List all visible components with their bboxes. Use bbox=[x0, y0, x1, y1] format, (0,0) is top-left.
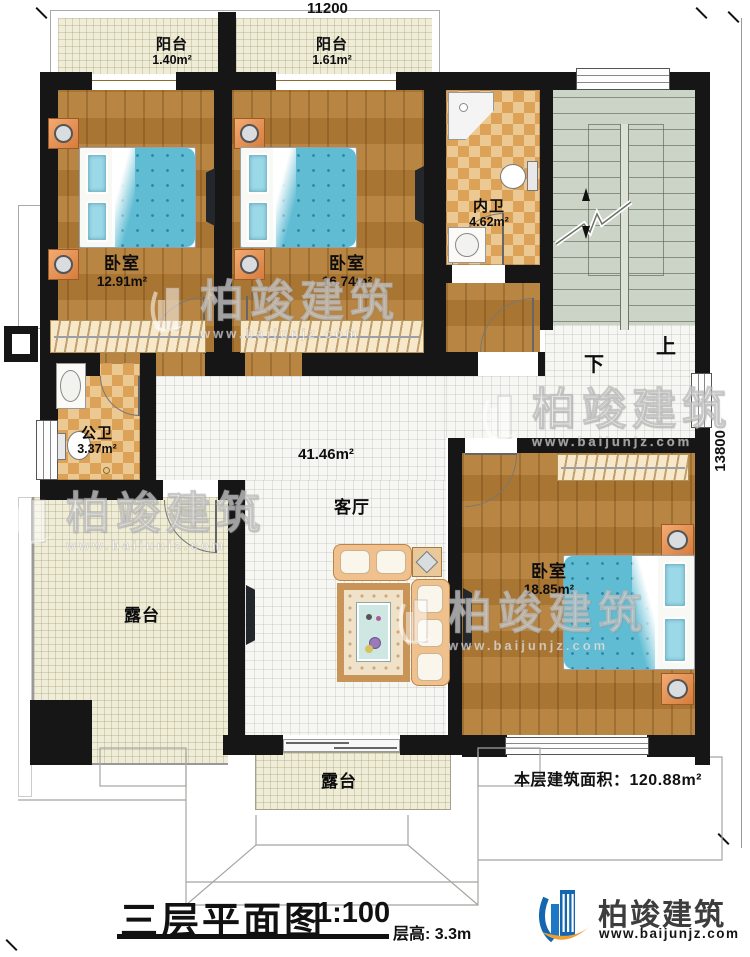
pillow bbox=[86, 201, 108, 242]
toilet-bowl bbox=[500, 164, 526, 189]
wall bbox=[505, 265, 545, 283]
coffee-table bbox=[357, 603, 390, 661]
nightstand bbox=[48, 249, 79, 280]
nightstand bbox=[48, 118, 79, 149]
sheet-fold bbox=[273, 148, 296, 247]
bed bbox=[79, 147, 196, 248]
wall bbox=[448, 438, 465, 453]
bed bbox=[240, 147, 357, 248]
living-floor-a bbox=[156, 376, 446, 480]
wall bbox=[214, 90, 232, 376]
wall bbox=[517, 438, 695, 453]
terrace-column bbox=[30, 700, 92, 765]
floor-plan: 上 下 bbox=[0, 0, 750, 957]
wall bbox=[538, 352, 545, 376]
flower-decor bbox=[366, 614, 372, 620]
sofa-cushion bbox=[417, 619, 443, 647]
room-label-bedroom-3: 卧室18.85m² bbox=[524, 562, 574, 597]
stair-direction-arrow bbox=[582, 188, 590, 201]
room-label-terrace-left: 露台 bbox=[124, 606, 160, 626]
company-website: www.baijunjz.com bbox=[599, 926, 740, 941]
room-label-terrace-bottom: 露台 bbox=[321, 772, 357, 792]
window bbox=[691, 373, 712, 428]
wall bbox=[396, 72, 578, 90]
living-room-name: 客厅 bbox=[334, 498, 370, 518]
sink bbox=[455, 233, 479, 257]
sliding-door bbox=[283, 739, 400, 752]
room-label-balcony-1: 阳台1.40m² bbox=[152, 36, 192, 68]
company-logo-icon bbox=[536, 886, 594, 946]
pillow bbox=[247, 153, 269, 194]
pillow bbox=[86, 153, 108, 194]
wardrobe bbox=[50, 320, 206, 353]
room-label-inner-bathroom: 内卫4.62m² bbox=[469, 198, 509, 230]
sofa-cushion bbox=[417, 585, 443, 613]
sofa-cushion bbox=[376, 550, 406, 574]
bay-window-outline bbox=[18, 205, 42, 329]
balcony-door-threshold bbox=[276, 77, 396, 81]
wall bbox=[424, 90, 446, 376]
wall-terrace bbox=[228, 497, 245, 755]
wall bbox=[140, 352, 156, 500]
title-underline bbox=[117, 934, 389, 939]
living-floor-c bbox=[446, 376, 695, 438]
dimension-tick bbox=[5, 939, 17, 951]
nightstand bbox=[234, 118, 265, 149]
window bbox=[505, 737, 649, 755]
wall-bedroom3-left bbox=[448, 453, 462, 735]
door-leaf bbox=[465, 453, 517, 455]
left-flue-inner bbox=[12, 334, 30, 354]
wall bbox=[40, 480, 163, 500]
rug bbox=[337, 583, 410, 682]
wall bbox=[400, 735, 462, 755]
toilet-tank bbox=[57, 433, 66, 460]
wardrobe bbox=[557, 454, 689, 481]
door-leaf bbox=[532, 298, 534, 352]
dimension-top: 11200 bbox=[307, 0, 348, 17]
room-label-public-bathroom: 公卫3.37m² bbox=[77, 425, 117, 457]
wall bbox=[302, 352, 424, 376]
sink bbox=[60, 370, 81, 402]
stair-up-label: 上 bbox=[656, 330, 676, 359]
dimension-tick bbox=[727, 11, 739, 23]
dimension-tick bbox=[717, 833, 729, 845]
wall bbox=[424, 265, 452, 283]
stair-rail bbox=[620, 124, 629, 330]
floor-area-note: 本层建筑面积：120.88m² bbox=[514, 766, 702, 790]
window bbox=[36, 420, 58, 480]
dimension-tick bbox=[35, 7, 47, 19]
wall-balcony-divider bbox=[218, 12, 236, 90]
floor-drain bbox=[103, 467, 110, 474]
sofa-top bbox=[333, 544, 412, 581]
sheet-fold bbox=[632, 556, 658, 669]
room-label-bedroom-2: 卧室16.74m² bbox=[322, 254, 372, 289]
living-room-area: 41.46m² bbox=[298, 446, 354, 463]
room-label-balcony-2: 阳台1.61m² bbox=[312, 36, 352, 68]
tv bbox=[206, 168, 215, 226]
toilet-tank bbox=[527, 161, 538, 191]
stair-direction-arrow bbox=[582, 226, 590, 239]
tv bbox=[463, 588, 472, 650]
pillow bbox=[663, 562, 688, 608]
nightstand bbox=[661, 673, 694, 705]
tv bbox=[415, 166, 424, 224]
flower-decor bbox=[365, 645, 373, 653]
stair-down-label: 下 bbox=[584, 348, 604, 377]
sheet-fold bbox=[112, 148, 135, 247]
corner-table bbox=[412, 547, 442, 577]
wall bbox=[647, 735, 695, 757]
wall bbox=[462, 735, 507, 757]
flower-decor bbox=[376, 616, 381, 621]
dimension-right: 13800 bbox=[712, 430, 729, 472]
dimension-tick bbox=[695, 7, 707, 19]
balcony-door-threshold bbox=[92, 77, 176, 81]
wall-stair-left bbox=[540, 90, 553, 330]
door-leaf bbox=[215, 500, 217, 553]
drawing-scale: 1:100 bbox=[316, 897, 390, 930]
nightstand bbox=[234, 249, 265, 280]
balcony-1-floor bbox=[58, 18, 218, 74]
bed bbox=[563, 555, 695, 670]
dimension-line-right bbox=[741, 18, 742, 848]
room-label-bedroom-1: 卧室12.91m² bbox=[97, 254, 147, 289]
floor-height-note: 层高: 3.3m bbox=[393, 920, 471, 944]
window bbox=[576, 68, 670, 90]
wardrobe bbox=[240, 320, 424, 353]
sofa-side bbox=[411, 579, 450, 686]
sofa-cushion bbox=[340, 550, 370, 574]
nightstand bbox=[661, 524, 694, 556]
pillow bbox=[247, 201, 269, 242]
sofa-cushion bbox=[417, 653, 443, 681]
wall bbox=[446, 352, 478, 376]
tv bbox=[246, 585, 255, 645]
wall bbox=[223, 735, 283, 755]
pillow bbox=[663, 617, 688, 663]
wall bbox=[205, 352, 245, 376]
door-leaf bbox=[138, 376, 140, 416]
